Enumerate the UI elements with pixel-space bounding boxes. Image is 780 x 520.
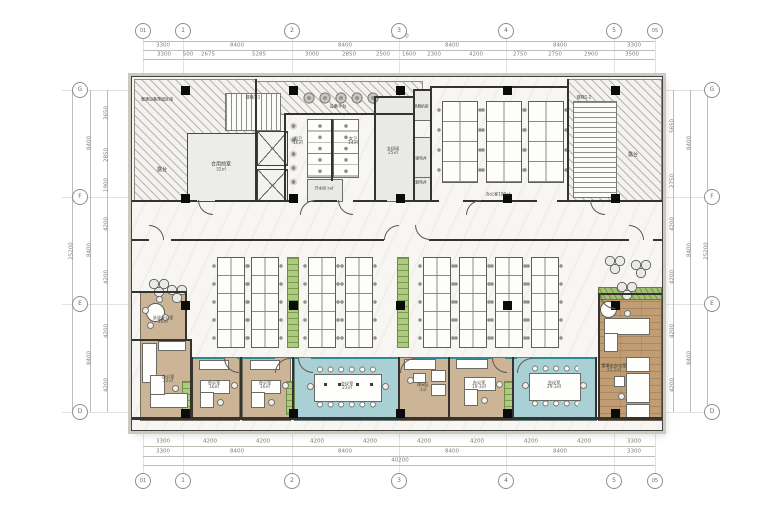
desk-return-office-c bbox=[464, 389, 478, 406]
dim-top-minor-2: 2675 bbox=[201, 53, 215, 59]
grid-bubble-bottom-01: 01 bbox=[135, 473, 151, 489]
grid-bubble-bottom-5: 5 bbox=[606, 473, 622, 489]
wall-h-3 bbox=[353, 200, 387, 202]
armchair-lounge-2 bbox=[431, 384, 446, 396]
grid-bubble-top-3: 3 bbox=[391, 23, 407, 39]
grid-bubble-bottom-3: 3 bbox=[391, 473, 407, 489]
grid-bubble-bottom-05: 05 bbox=[647, 473, 663, 489]
chair-11 bbox=[522, 382, 529, 389]
dim-right-minor-4: 4200 bbox=[670, 324, 676, 338]
dim-top-minor-8: 2300 bbox=[427, 53, 441, 59]
dim-right-minor-5: 4200 bbox=[670, 378, 676, 392]
room-label-exec-office: 董事长办公室45.5㎡ bbox=[601, 363, 626, 373]
room-label-smoke-room: 排烟机房 bbox=[413, 105, 428, 110]
column-2-G bbox=[289, 86, 298, 95]
dimension-line-6 bbox=[107, 90, 108, 412]
dim-top-minor-12: 2900 bbox=[584, 53, 598, 59]
column-2-F bbox=[289, 194, 298, 203]
wall-h-15 bbox=[132, 291, 185, 293]
dim-left-minor-1: 2850 bbox=[104, 148, 110, 162]
room-label-equip-platform: 设备平台 bbox=[330, 103, 347, 108]
desk-cluster-main-7 bbox=[531, 257, 559, 348]
chairs-left-main-7 bbox=[525, 257, 531, 346]
dimension-line-0 bbox=[143, 41, 655, 42]
desk-cluster-top-2 bbox=[528, 101, 564, 183]
chair-16 bbox=[624, 310, 631, 317]
dim-bottom-minor-7: 4200 bbox=[524, 440, 538, 446]
wall-v-2 bbox=[331, 119, 333, 181]
wall-v-14 bbox=[512, 357, 514, 419]
grid-bubble-left-F: F bbox=[72, 189, 88, 205]
chairs-left-main-2 bbox=[302, 257, 308, 346]
door-arc-4 bbox=[590, 200, 605, 215]
desk-cluster-top-1 bbox=[486, 101, 522, 183]
grid-bubble-right-F: F bbox=[704, 189, 720, 205]
dim-top-major-0: 3300 bbox=[156, 44, 170, 50]
wall-h-12 bbox=[374, 96, 413, 98]
room-label-female-wc: 女卫14㎡ bbox=[348, 136, 358, 146]
dim-top-minor-6: 2500 bbox=[376, 53, 390, 59]
chair-12 bbox=[580, 382, 587, 389]
seat-cluster-3 bbox=[630, 259, 652, 279]
column-3-E bbox=[396, 301, 405, 310]
conf-chair-row-3 bbox=[530, 400, 578, 407]
dimension-line-5 bbox=[143, 465, 655, 466]
room-label-print-room: 文印间25㎡ bbox=[387, 146, 400, 156]
door-arc-1 bbox=[300, 200, 315, 215]
dim-top-major-3: 8400 bbox=[445, 44, 459, 50]
desk-return-office-a bbox=[200, 392, 214, 408]
column-3-D bbox=[396, 409, 405, 418]
column-4-D bbox=[503, 409, 512, 418]
wc-fixtures bbox=[287, 119, 300, 185]
dim-top-minor-0: 3300 bbox=[157, 53, 171, 59]
dim-top-major-4: 8400 bbox=[553, 44, 567, 50]
wc-stalls-male bbox=[307, 119, 333, 178]
desk-cluster-top-0 bbox=[442, 101, 478, 183]
dimension-line-3 bbox=[143, 446, 655, 447]
wall-h-9 bbox=[429, 239, 629, 241]
grid-bubble-top-4: 4 bbox=[498, 23, 514, 39]
room-label-shared-lobby: 合用前室32㎡ bbox=[211, 161, 231, 172]
room-label-terrace-left: 露台 bbox=[157, 167, 167, 173]
seat-cluster-2 bbox=[604, 255, 626, 275]
chair-8 bbox=[268, 399, 275, 406]
column-5-D bbox=[611, 409, 620, 418]
dim-bottom-major-2: 8400 bbox=[338, 450, 352, 456]
chairs-left-top-2 bbox=[522, 101, 528, 181]
table-deco-3 bbox=[370, 383, 373, 386]
room-label-office-22: 办公室22㎡ bbox=[162, 374, 175, 384]
column-5-F bbox=[611, 194, 620, 203]
chairs-left-main-1 bbox=[245, 257, 251, 346]
dim-top-minor-3: 5285 bbox=[252, 53, 266, 59]
dim-right-major-0: 8400 bbox=[687, 136, 693, 150]
partition-teal-0 bbox=[191, 357, 224, 359]
dim-right-major-2: 8400 bbox=[687, 351, 693, 365]
chair-10 bbox=[382, 383, 389, 390]
grid-bubble-right-E: E bbox=[704, 296, 720, 312]
desk-cluster-main-1 bbox=[251, 257, 279, 348]
chairs-right-main-7 bbox=[558, 257, 564, 346]
dim-left-total-0: 25200 bbox=[69, 242, 75, 260]
room-label-stair2: 楼梯1-2 bbox=[577, 96, 592, 101]
wc-stalls-female bbox=[333, 119, 359, 178]
dim-bottom-major-4: 8400 bbox=[553, 450, 567, 456]
conf-chair-row-1 bbox=[315, 401, 379, 408]
dim-left-minor-6: 4200 bbox=[104, 378, 110, 392]
door-arc-3 bbox=[466, 200, 481, 215]
exec-desk-return bbox=[604, 333, 618, 352]
grid-bubble-bottom-4: 4 bbox=[498, 473, 514, 489]
wall-h-6 bbox=[557, 200, 662, 202]
dim-top-minor-10: 2750 bbox=[513, 53, 527, 59]
wall-h-4 bbox=[405, 200, 439, 202]
wall-v-1 bbox=[284, 113, 286, 200]
table-deco-0 bbox=[324, 383, 327, 386]
dim-top-minor-4: 3000 bbox=[305, 53, 319, 59]
wall-v-6 bbox=[567, 79, 569, 200]
grid-bubble-top-5: 5 bbox=[606, 23, 622, 39]
chairs-left-top-1 bbox=[480, 101, 486, 181]
wall-h-14 bbox=[430, 86, 567, 88]
grid-bubble-left-E: E bbox=[72, 296, 88, 312]
chairs-right-main-3 bbox=[372, 257, 378, 346]
chair-6 bbox=[217, 399, 224, 406]
room-label-elv-shaft: 弱电井 bbox=[415, 181, 426, 186]
dim-bottom-minor-3: 4200 bbox=[310, 440, 324, 446]
dim-left-major-1: 8400 bbox=[87, 243, 93, 257]
column-1-D bbox=[181, 409, 190, 418]
dim-top-major-5: 3300 bbox=[627, 44, 641, 50]
wall-h-10 bbox=[653, 239, 662, 241]
chair-17 bbox=[618, 393, 625, 400]
dim-right-minor-1: 2750 bbox=[670, 174, 676, 188]
chair-5 bbox=[231, 382, 238, 389]
wall-h-11 bbox=[284, 113, 413, 115]
door-arc-0 bbox=[198, 200, 213, 215]
dim-bottom-major-1: 8400 bbox=[230, 450, 244, 456]
column-5-G bbox=[611, 86, 620, 95]
dim-left-minor-4: 4200 bbox=[104, 270, 110, 284]
dim-bottom-minor-9: 3300 bbox=[627, 440, 641, 446]
room-label-hvac-note: 暖通设备预留区域 bbox=[141, 98, 173, 103]
grid-bubble-bottom-2: 2 bbox=[284, 473, 300, 489]
dim-top-minor-7: 1600 bbox=[402, 53, 416, 59]
dim-bottom-minor-5: 4200 bbox=[417, 440, 431, 446]
grid-bubble-top-01: 01 bbox=[135, 23, 151, 39]
desk-office-22 bbox=[150, 393, 188, 408]
partition-teal-1 bbox=[237, 357, 275, 359]
dim-bottom-minor-4: 4200 bbox=[363, 440, 377, 446]
exec-side-table bbox=[614, 376, 625, 387]
room-label-lounge: 休闲区3㎡ bbox=[417, 383, 429, 393]
door-arc-6 bbox=[384, 225, 399, 240]
room-label-conf-1: 会议室23㎡ bbox=[341, 381, 354, 391]
grid-bubble-left-G: G bbox=[72, 82, 88, 98]
column-1-G bbox=[181, 86, 190, 95]
dim-left-major-0: 8400 bbox=[87, 136, 93, 150]
dim-left-minor-2: 1900 bbox=[104, 178, 110, 192]
chair-4 bbox=[172, 385, 179, 392]
dim-bottom-total-0: 40200 bbox=[391, 459, 409, 465]
dim-right-minor-3: 4200 bbox=[670, 270, 676, 284]
room-label-power-shaft: 强电井 bbox=[415, 157, 426, 162]
dim-bottom-minor-2: 4200 bbox=[256, 440, 270, 446]
room-label-terrace-right: 露台 bbox=[628, 152, 638, 158]
desk-cluster-main-4 bbox=[423, 257, 451, 348]
desk-return-office-b bbox=[251, 392, 265, 408]
column-1-F bbox=[181, 194, 190, 203]
dim-left-major-2: 8400 bbox=[87, 351, 93, 365]
wall-v-10 bbox=[240, 357, 242, 419]
wall-v-15 bbox=[595, 357, 597, 419]
wall-v-3 bbox=[374, 96, 376, 200]
floor-plan-sheet: 4020033008400840084008400330033005002675… bbox=[0, 0, 780, 520]
column-2-E bbox=[289, 301, 298, 310]
wall-h-1 bbox=[215, 200, 297, 202]
dim-right-minor-0: 5650 bbox=[670, 119, 676, 133]
exec-sofa-2 bbox=[626, 373, 650, 403]
dim-top-major-1: 8400 bbox=[230, 44, 244, 50]
grid-bubble-top-05: 05 bbox=[647, 23, 663, 39]
dim-right-minor-2: 4200 bbox=[670, 217, 676, 231]
wall-h-7 bbox=[132, 239, 149, 241]
column-4-E bbox=[503, 301, 512, 310]
door-arc-8 bbox=[629, 225, 644, 240]
grid-bubble-left-D: D bbox=[72, 404, 88, 420]
sofa-office-c bbox=[456, 359, 488, 369]
wall-h-16 bbox=[132, 339, 190, 341]
dim-top-minor-13: 3500 bbox=[625, 53, 639, 59]
armchair-lounge-1 bbox=[431, 370, 446, 382]
desk-cluster-main-2 bbox=[308, 257, 336, 348]
chairs-left-top-0 bbox=[436, 101, 442, 181]
room-label-hot-water: 开水间 5㎡ bbox=[315, 187, 334, 192]
dim-top-major-2: 8400 bbox=[338, 44, 352, 50]
column-3-F bbox=[396, 194, 405, 203]
dim-bottom-major-0: 3300 bbox=[156, 450, 170, 456]
conf-chair-row-0 bbox=[315, 366, 379, 373]
room-label-male-wc: 男卫16㎡ bbox=[293, 136, 303, 146]
dim-bottom-minor-8: 4200 bbox=[577, 440, 591, 446]
table-deco-2 bbox=[356, 383, 359, 386]
desk-cluster-main-3 bbox=[345, 257, 373, 348]
grid-bubble-top-1: 1 bbox=[175, 23, 191, 39]
dimension-line-1 bbox=[143, 50, 655, 51]
column-2-D bbox=[289, 409, 298, 418]
dim-left-minor-3: 4200 bbox=[104, 217, 110, 231]
room-label-office-top: 办公室109㎡ bbox=[486, 191, 511, 196]
chair-7 bbox=[282, 382, 289, 389]
room-label-office-c: 办公室19.3㎡ bbox=[472, 380, 486, 390]
wall-v-5 bbox=[430, 86, 432, 200]
room-label-office-a: 办公室16㎡ bbox=[208, 380, 221, 390]
chairs-left-main-6 bbox=[489, 257, 495, 346]
door-arc-7 bbox=[415, 225, 430, 240]
door-arc-5 bbox=[149, 225, 164, 240]
grid-bubble-right-D: D bbox=[704, 404, 720, 420]
cabinet-row bbox=[158, 341, 186, 351]
dim-bottom-minor-6: 4200 bbox=[470, 440, 484, 446]
wall-v-13 bbox=[448, 357, 450, 419]
wall-h-2 bbox=[313, 200, 337, 202]
wall-h-8 bbox=[171, 239, 384, 241]
chairs-right-main-1 bbox=[278, 257, 284, 346]
chair-14 bbox=[496, 381, 503, 388]
chairs-left-main-4 bbox=[417, 257, 423, 346]
grid-bubble-bottom-1: 1 bbox=[175, 473, 191, 489]
seat-cluster-4 bbox=[616, 281, 638, 301]
dim-bottom-major-3: 8400 bbox=[445, 450, 459, 456]
column-1-E bbox=[181, 301, 190, 310]
room-label-office-b: 办公室16㎡ bbox=[259, 380, 272, 390]
dim-left-minor-5: 4200 bbox=[104, 324, 110, 338]
dimension-line-2 bbox=[143, 59, 655, 60]
room-label-conf-2: 会议室29.3㎡ bbox=[547, 380, 561, 390]
grid-bubble-right-G: G bbox=[704, 82, 720, 98]
dim-top-minor-5: 2850 bbox=[342, 53, 356, 59]
conf-chair-row-2 bbox=[530, 365, 578, 372]
chairs-left-main-3 bbox=[339, 257, 345, 346]
wall-v-7 bbox=[185, 291, 187, 339]
building-outline: 暖通设备预留区域 露台 楼梯1-1 合用前室32㎡ 设备平台 男卫16㎡ 女卫1… bbox=[131, 76, 663, 431]
chair-13 bbox=[407, 377, 414, 384]
chair-0 bbox=[142, 307, 149, 314]
dim-bottom-minor-0: 3300 bbox=[156, 440, 170, 446]
wall-h-13 bbox=[413, 89, 430, 91]
exec-sofa-1 bbox=[626, 357, 650, 372]
door-arc-2 bbox=[338, 200, 353, 215]
chair-15 bbox=[481, 397, 488, 404]
chairs-left-main-0 bbox=[211, 257, 217, 346]
partition-teal-4 bbox=[413, 357, 492, 359]
dimension-line-9 bbox=[673, 90, 674, 412]
dim-bottom-major-5: 3300 bbox=[627, 450, 641, 456]
desk-cluster-main-0 bbox=[217, 257, 245, 348]
column-3-G bbox=[396, 86, 405, 95]
dim-top-minor-9: 4200 bbox=[469, 53, 483, 59]
grid-bubble-top-2: 2 bbox=[284, 23, 300, 39]
room-label-stair1: 楼梯1-1 bbox=[246, 96, 261, 101]
dim-left-minor-0: 3650 bbox=[104, 106, 110, 120]
dim-bottom-minor-1: 4200 bbox=[203, 440, 217, 446]
wall-v-9 bbox=[191, 357, 193, 419]
chair-9 bbox=[307, 383, 314, 390]
desk-cluster-main-5 bbox=[459, 257, 487, 348]
dim-right-major-1: 8400 bbox=[687, 243, 693, 257]
column-4-G bbox=[503, 86, 512, 95]
wall-v-16 bbox=[598, 293, 600, 419]
dim-right-total-0: 25200 bbox=[704, 242, 710, 260]
partition-teal-3 bbox=[311, 357, 400, 359]
dim-top-minor-1: 500 bbox=[183, 53, 194, 59]
room-label-meeting-office: 洽谈办公室16㎡ bbox=[153, 315, 174, 325]
dim-top-minor-11: 2750 bbox=[548, 53, 562, 59]
partition-teal-6 bbox=[530, 357, 595, 359]
chairs-left-main-5 bbox=[453, 257, 459, 346]
stair-1-2 bbox=[573, 101, 617, 198]
chair-1 bbox=[156, 296, 163, 303]
